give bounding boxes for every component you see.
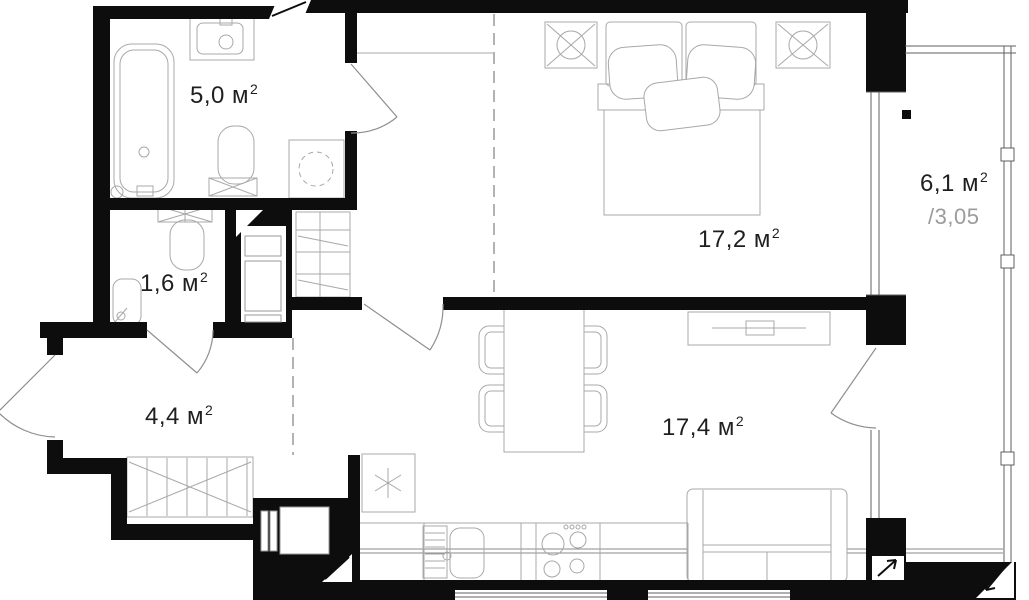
- living-furniture: [359, 306, 1003, 582]
- wc-door: [147, 330, 213, 373]
- stove: [542, 525, 586, 577]
- snowflake-icon: [375, 468, 401, 498]
- pillow: [642, 76, 721, 133]
- wc-fixtures: [113, 206, 212, 325]
- room-label-wc: 1,6 м2: [140, 272, 207, 296]
- zone-dashed-lines: [293, 14, 494, 455]
- bedroom-furniture: [357, 22, 830, 215]
- wc-toilet: [170, 220, 204, 270]
- room-label-balcony: 6,1 м2: [920, 172, 987, 196]
- balcony-door: [831, 348, 876, 428]
- floor-plan-drawing: [0, 0, 1029, 600]
- dining-set: [479, 306, 607, 452]
- living-balcony-window: [871, 430, 879, 518]
- dining-table: [504, 306, 584, 452]
- entrance-door: [0, 355, 55, 437]
- bed: [598, 22, 764, 215]
- tv-console: [688, 312, 830, 345]
- floor-plan: 5,0 м2 1,6 м2 4,4 м2 17,2 м2 17,4 м2 6,1…: [0, 0, 1029, 600]
- room-label-bedroom: 17,2 м2: [698, 228, 779, 252]
- walls: [40, 0, 1016, 600]
- sofa: [687, 489, 847, 582]
- bathtub: [114, 44, 174, 198]
- balcony-glazing: [905, 46, 1016, 562]
- bedroom-door: [364, 304, 443, 350]
- balcony-coefficient-label: /3,05: [928, 206, 979, 228]
- kitchen-sink: [423, 526, 484, 578]
- bedside-table-left: [545, 22, 597, 68]
- toilet: [218, 126, 254, 184]
- fridge: [362, 454, 415, 512]
- room-label-hallway: 4,4 м2: [145, 405, 212, 429]
- bedside-table-right: [776, 22, 830, 68]
- bathroom-door: [351, 64, 397, 133]
- closet-shelves: [296, 212, 350, 297]
- bedroom-balcony-window: [866, 92, 906, 295]
- room-label-bathroom: 5,0 м2: [190, 84, 257, 108]
- room-label-living-kitchen: 17,4 м2: [662, 416, 743, 440]
- washing-machine: [289, 140, 344, 198]
- kitchen-fixtures: [360, 454, 688, 580]
- hall-wardrobe: [127, 457, 253, 517]
